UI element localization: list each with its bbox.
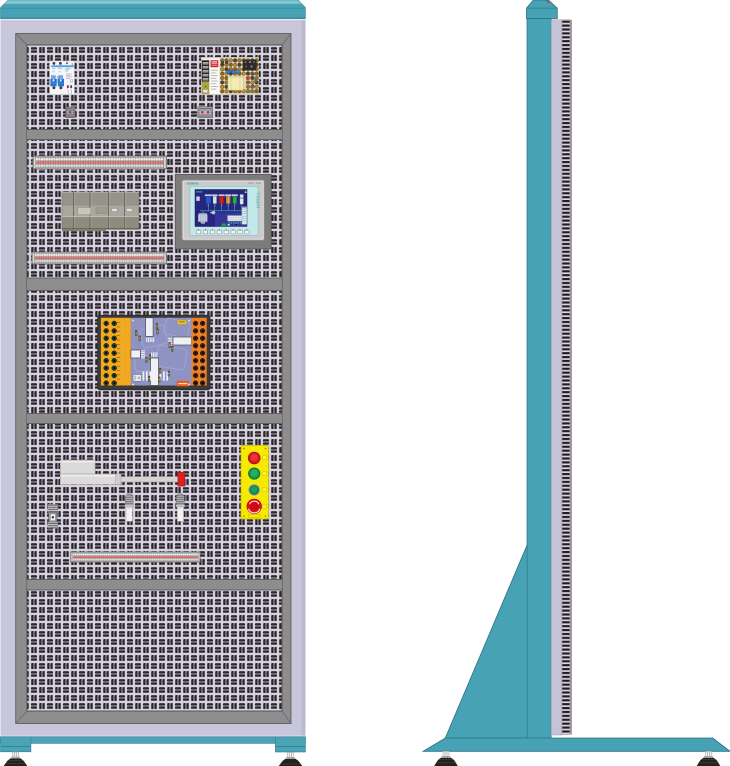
svg-text:SIEMENS: SIEMENS xyxy=(187,182,199,186)
svg-text:TOUCH: TOUCH xyxy=(256,193,261,209)
